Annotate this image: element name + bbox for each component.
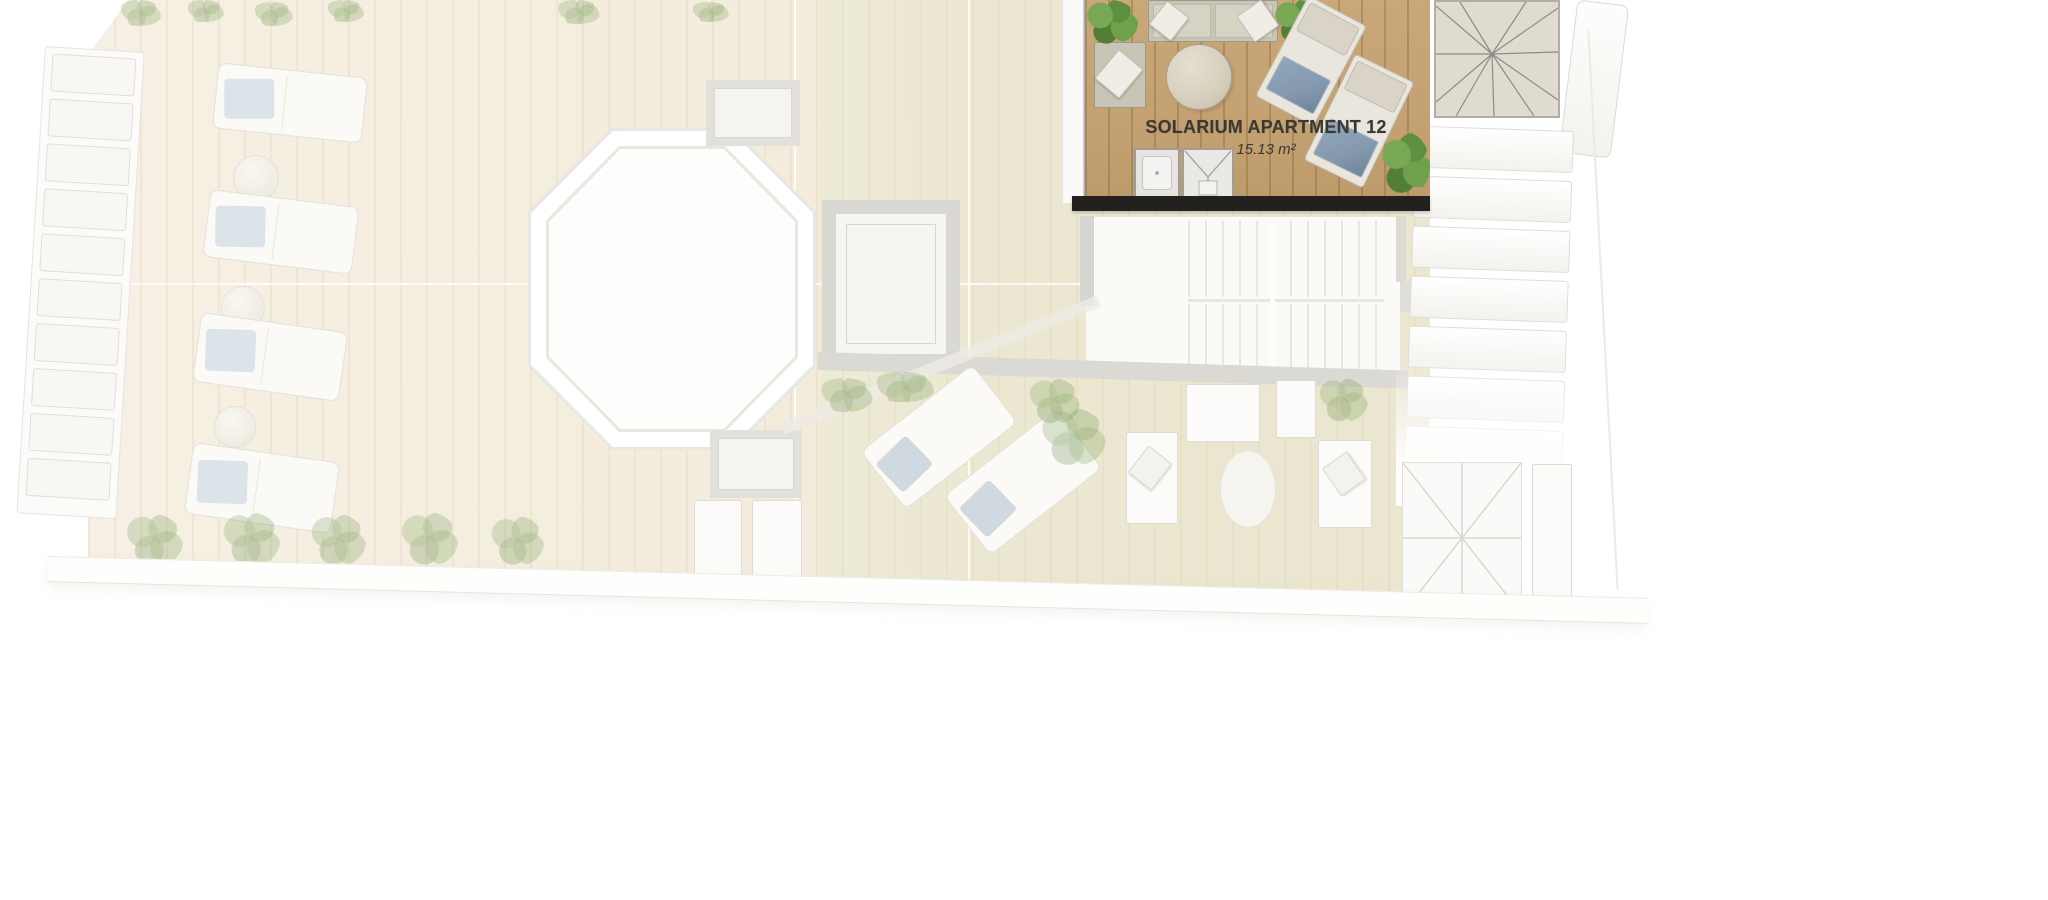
ladder-rung [37, 278, 123, 321]
plant [555, 0, 601, 24]
solarium-left-wall [1062, 0, 1084, 203]
roof-slab [1532, 464, 1572, 614]
stair-landing-line [1188, 299, 1384, 302]
hedge-plant [310, 514, 366, 566]
roof-slat [1411, 226, 1570, 273]
roof-hatch [706, 80, 800, 146]
corner-sofa [1148, 0, 1278, 42]
plant [1084, 0, 1138, 44]
plant [818, 378, 874, 412]
hedge-plant [222, 512, 280, 566]
lounger-pillow [215, 205, 266, 247]
solarium-wall [1072, 196, 1430, 211]
plant [1318, 378, 1368, 422]
hedge-plant [490, 516, 544, 566]
skylight-square-frame [846, 224, 936, 344]
armchair-pillow [1095, 49, 1144, 99]
ladder-rung [31, 368, 117, 411]
ladder-rung [34, 323, 120, 366]
fan-staircase-steps [1436, 2, 1558, 116]
shower-drain [1155, 171, 1159, 175]
ladder-rung [28, 413, 114, 456]
lounger-pillow [197, 459, 248, 504]
plant [872, 372, 936, 402]
plant [325, 0, 365, 22]
terrace-table [1186, 384, 1260, 442]
floorplan-canvas: SOLARIUM APARTMENT 12 15.13 m² [0, 0, 2048, 900]
terrace-armchair [1318, 440, 1372, 528]
ladder-rung [50, 53, 136, 96]
wall-stub [1396, 216, 1406, 282]
side-table [214, 406, 256, 448]
ladder-rung [47, 98, 133, 141]
coffee-table [1166, 44, 1232, 110]
plant [118, 0, 162, 26]
octagon-skylight-glass [549, 149, 795, 429]
roof-slat [1409, 275, 1568, 322]
stair-treads [1188, 221, 1384, 297]
lounger-towel [1266, 55, 1332, 114]
solarium-label: SOLARIUM APARTMENT 12 15.13 m² [1086, 117, 1446, 158]
hedge-plant [400, 512, 458, 566]
roof-hatch [710, 430, 802, 498]
ladder-rung [42, 188, 128, 231]
lounger-pillow [224, 78, 274, 118]
terrace-oval-table [1220, 450, 1276, 528]
fan-staircase [1434, 0, 1560, 118]
plant [252, 2, 294, 26]
wall-stub [1080, 216, 1094, 306]
solarium-title: SOLARIUM APARTMENT 12 [1086, 117, 1446, 138]
ladder-rung [39, 233, 125, 276]
armchair [1094, 42, 1146, 108]
hip-roof-ridges [1403, 463, 1521, 613]
roof-panel [752, 500, 802, 586]
roof-slat [1413, 176, 1572, 223]
ladder-rung [45, 143, 131, 186]
terrace-table [1276, 380, 1316, 438]
plant [185, 0, 225, 22]
solarium-area: 15.13 m² [1086, 141, 1446, 158]
ladder-rung [26, 458, 112, 501]
plant [690, 2, 730, 22]
stair-stringer [1270, 221, 1275, 376]
plant [1040, 408, 1106, 466]
lounger-pillow [205, 329, 256, 373]
terrace-armchair [1126, 432, 1178, 524]
